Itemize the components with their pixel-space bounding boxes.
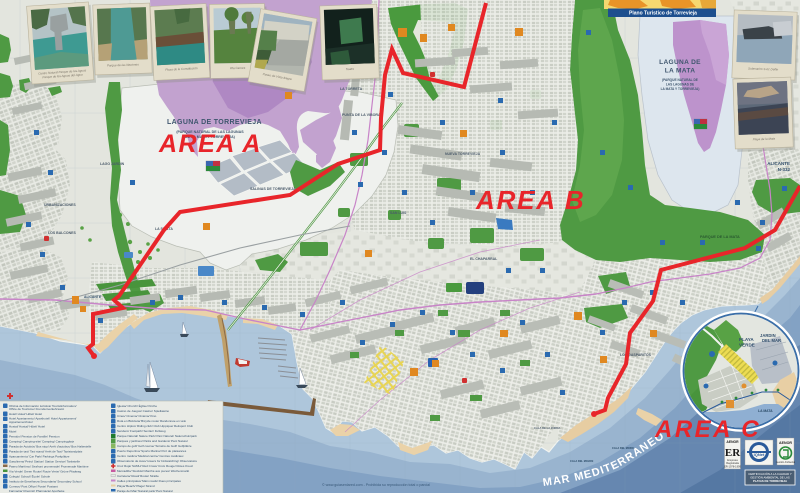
svg-text:LA MATA: LA MATA bbox=[665, 68, 696, 75]
svg-text:Pensión/ Pension de Famille/ P: Pensión/ Pension de Famille/ Pension bbox=[9, 434, 60, 438]
svg-text:Paseo Marítimo/ Seafront prome: Paseo Marítimo/ Seafront promenade/ Prom… bbox=[9, 464, 89, 468]
svg-text:PLAYA: PLAYA bbox=[739, 337, 754, 342]
svg-text:ER: ER bbox=[725, 447, 741, 459]
svg-text:Vía Verde/ Green Route/ Route: Vía Verde/ Green Route/ Route Verte/ Grü… bbox=[9, 469, 81, 473]
svg-text:LA TORRETA: LA TORRETA bbox=[340, 87, 363, 91]
svg-text:Parada de taxi/ Taxi stand/ Ar: Parada de taxi/ Taxi stand/ Arrêt de Tax… bbox=[9, 449, 83, 453]
svg-text:Aparcamiento/ Car Park/ Parkin: Aparcamiento/ Car Park/ Parkings Parkplä… bbox=[9, 454, 70, 458]
svg-text:Campo de golf/ Golf course/ Te: Campo de golf/ Golf course/ Terrains de … bbox=[117, 444, 192, 448]
svg-text:Registrada: Registrada bbox=[726, 461, 739, 465]
svg-text:ALICANTE →: ALICANTE → bbox=[84, 295, 105, 299]
svg-text:Mercadillo/ Stockist/ Marché a: Mercadillo/ Stockist/ Marché aux puces/ … bbox=[117, 469, 189, 473]
svg-text:Sendero/ Footpath/ Sentier/ Fu: Sendero/ Footpath/ Sentier/ Fußweg bbox=[117, 429, 166, 433]
svg-text:LAS LAGUNAS DE: LAS LAGUNAS DE bbox=[666, 83, 694, 87]
svg-text:Hotel/ Hotel/ Hôtel/ Hotel: Hotel/ Hotel/ Hôtel/ Hotel bbox=[9, 412, 42, 416]
svg-text:N-332: N-332 bbox=[778, 167, 791, 172]
svg-text:Hostal/ Hostal/ Hôtel/ Hotel: Hostal/ Hostal/ Hôtel/ Hotel bbox=[9, 424, 45, 428]
svg-text:Ruta en Bicicleta/ Bicycle rou: Ruta en Bicicleta/ Bicycle route/ Randon… bbox=[117, 419, 186, 423]
svg-text:AENOR: AENOR bbox=[779, 441, 792, 445]
svg-text:LAGUNA DE: LAGUNA DE bbox=[659, 59, 701, 66]
svg-text:DEL MAR: DEL MAR bbox=[762, 338, 781, 343]
svg-text:ALICANTE: ALICANTE bbox=[767, 161, 790, 166]
svg-text:Observatorio de Aves/ towers f: Observatorio de Aves/ towers for birdwat… bbox=[117, 459, 197, 463]
svg-text:(PARQUE NATURAL DE: (PARQUE NATURAL DE bbox=[662, 78, 698, 82]
svg-text:LAGUNA DE TORREVIEJA: LAGUNA DE TORREVIEJA bbox=[167, 119, 262, 126]
svg-text:PARQUE DE LA MATA: PARQUE DE LA MATA bbox=[700, 235, 740, 239]
svg-text:Puerto Deportivo/ Sports Marin: Puerto Deportivo/ Sports Marina/ Port de… bbox=[117, 449, 187, 453]
svg-text:Gasolinera/ Petrol Station/ St: Gasolinera/ Petrol Station/ Station Serv… bbox=[9, 459, 80, 463]
svg-text:Correos/ Post Office/ Poste/ P: Correos/ Post Office/ Poste/ Postamt bbox=[9, 484, 58, 488]
svg-text:Appartementhotel: Appartementhotel bbox=[9, 420, 33, 424]
svg-text:AREA C: AREA C bbox=[654, 416, 761, 443]
svg-text:Colegio/ School/ École/ Schule: Colegio/ School/ École/ Schule bbox=[9, 473, 50, 478]
svg-text:Iglesia/ Church/ Église/ Kirch: Iglesia/ Church/ Église/ Kirche bbox=[117, 403, 157, 408]
svg-text:Farmacia/ Chemist/ Pharmacie/: Farmacia/ Chemist/ Pharmacie/ Apotheke bbox=[9, 489, 65, 493]
svg-text:Parques y jardines/ Parks and: Parques y jardines/ Parks and Gardens/ P… bbox=[117, 439, 188, 443]
svg-text:IQNet: IQNet bbox=[754, 452, 765, 457]
svg-text:Plano Turistico de Torrevieja: Plano Turistico de Torrevieja bbox=[629, 11, 697, 17]
svg-text:Playa de la Mata: Playa de la Mata bbox=[753, 137, 776, 142]
svg-text:Vila Canora: Vila Canora bbox=[230, 66, 246, 70]
svg-text:Paraje del Mar/ Natural park/: Paraje del Mar/ Natural park/ Parc Natur… bbox=[117, 489, 173, 493]
svg-text:AREA A: AREA A bbox=[158, 130, 262, 158]
svg-text:SAN LUIS: SAN LUIS bbox=[390, 211, 407, 215]
svg-text:LA MATA: LA MATA bbox=[758, 409, 773, 413]
svg-text:Instituto de Enseñanza Secunda: Instituto de Enseñanza Secundaria/ Secon… bbox=[9, 479, 82, 483]
svg-text:LAGO JARDIN: LAGO JARDIN bbox=[100, 162, 125, 166]
svg-text:Gestión Ambiental: Gestión Ambiental bbox=[776, 461, 796, 464]
svg-text:Teatro: Teatro bbox=[346, 67, 355, 71]
svg-text:EL CHAPARRAL: EL CHAPARRAL bbox=[470, 257, 498, 261]
svg-text:URBANIZACIONES: URBANIZACIONES bbox=[44, 203, 76, 207]
svg-text:CALA DEL MOJON: CALA DEL MOJON bbox=[570, 459, 593, 463]
svg-text:Centro médico/ Medical centre/: Centro médico/ Medical centre/ Centres m… bbox=[117, 454, 184, 458]
svg-text:Casino de Juegos/ Casino/ Spie: Casino de Juegos/ Casino/ Spielkasino bbox=[117, 409, 169, 413]
svg-text:LA MATA Y TORREVIEJA): LA MATA Y TORREVIEJA) bbox=[661, 87, 700, 91]
svg-text:Office de Tourisme/ Fremdenver: Office de Tourisme/ Fremdenverkehrsamt bbox=[9, 407, 64, 411]
svg-text:PLAYAS DE TORREVIEJA: PLAYAS DE TORREVIEJA bbox=[753, 479, 787, 483]
svg-text:LOS GASPARITOS: LOS GASPARITOS bbox=[620, 353, 652, 357]
svg-text:Cines/ Cinema/ Cinéma/ Kino: Cines/ Cinema/ Cinéma/ Kino bbox=[117, 414, 157, 418]
svg-text:Cruz Roja/ SAMU/ Red Cross/ Cr: Cruz Roja/ SAMU/ Red Cross/ Croix Rouge/… bbox=[117, 464, 194, 468]
svg-text:© www.guiasenlared.com - Prohi: © www.guiasenlared.com - Prohibida su re… bbox=[322, 483, 430, 487]
svg-text:LOS BALCONES: LOS BALCONES bbox=[48, 231, 76, 235]
svg-text:SALINAS DE TORREVIEJA: SALINAS DE TORREVIEJA bbox=[250, 187, 296, 191]
svg-text:ER-1978-1999: ER-1978-1999 bbox=[724, 465, 741, 469]
svg-text:Calles principales/ Main roads: Calles principales/ Main roads/ Rues pri… bbox=[117, 479, 181, 483]
svg-text:CALA DE LA ZORRA: CALA DE LA ZORRA bbox=[534, 426, 560, 430]
svg-text:CALA DEL MORO: CALA DEL MORO bbox=[612, 446, 634, 450]
svg-text:Camping/ Camping-site/ Camping: Camping/ Camping-site/ Camping/ Campingp… bbox=[9, 439, 75, 443]
svg-text:Playa/ Beach/ Plage/ Strand: Playa/ Beach/ Plage/ Strand bbox=[117, 484, 155, 488]
svg-text:NUEVA TORREVIEJA: NUEVA TORREVIEJA bbox=[445, 152, 481, 156]
svg-text:AREA B: AREA B bbox=[475, 185, 586, 215]
svg-text:AENOR: AENOR bbox=[726, 440, 739, 444]
svg-text:Motel: Motel bbox=[9, 429, 17, 433]
svg-text:PUNTA DE LA VIBORA: PUNTA DE LA VIBORA bbox=[342, 113, 381, 117]
svg-text:Carretera/ Road/ Route/ Straße: Carretera/ Road/ Route/ Straße bbox=[117, 474, 159, 478]
svg-text:Centro Hípico/ Riding club/ Cl: Centro Hípico/ Riding club/ Club Hippiqu… bbox=[117, 424, 193, 428]
svg-text:VERDE: VERDE bbox=[739, 343, 755, 348]
svg-text:Parque Natural/ Nature Park/ P: Parque Natural/ Nature Park/ Parc Nature… bbox=[117, 434, 197, 438]
svg-text:Parada de Autobús/ Bus stop/ A: Parada de Autobús/ Bus stop/ Arrêt d'aut… bbox=[9, 444, 92, 448]
